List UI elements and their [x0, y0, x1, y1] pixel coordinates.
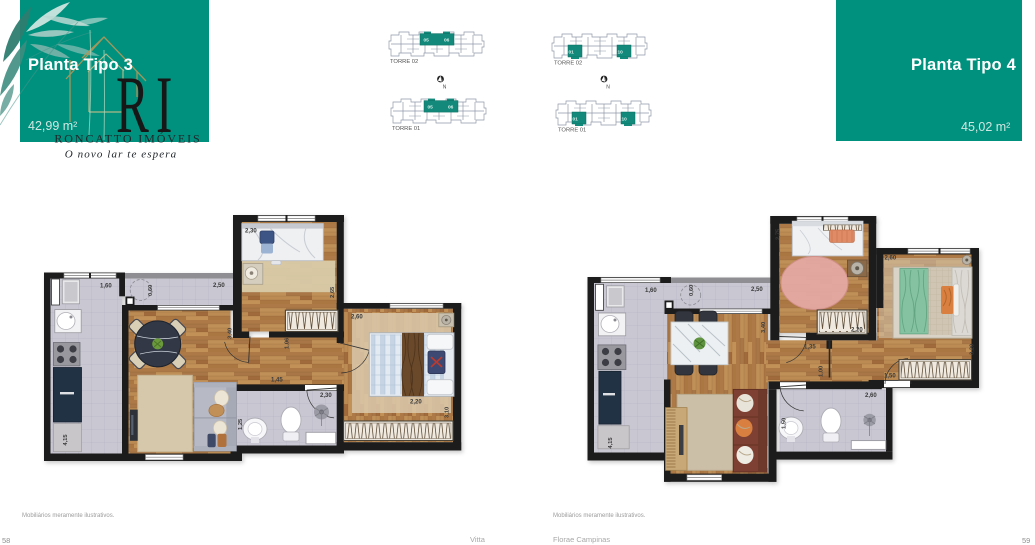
svg-text:2,60: 2,60	[885, 255, 897, 261]
svg-text:3,40: 3,40	[228, 328, 234, 339]
svg-text:RONCATTO IMÓVEIS: RONCATTO IMÓVEIS	[54, 132, 201, 146]
svg-text:TORRE 01: TORRE 01	[558, 128, 586, 134]
svg-text:10: 10	[618, 50, 624, 56]
svg-text:N: N	[443, 85, 447, 91]
svg-text:O novo lar te espera: O novo lar te espera	[65, 149, 177, 161]
svg-text:1,06: 1,06	[285, 337, 291, 349]
svg-text:1,60: 1,60	[100, 284, 112, 290]
svg-text:2,65: 2,65	[330, 286, 336, 298]
svg-text:0,60: 0,60	[148, 285, 154, 296]
svg-text:2,50: 2,50	[751, 287, 763, 293]
svg-text:1,45: 1,45	[271, 378, 283, 384]
svg-text:01: 01	[569, 50, 575, 56]
svg-text:2,60: 2,60	[865, 393, 877, 399]
svg-text:1,50: 1,50	[782, 418, 788, 429]
svg-text:1,60: 1,60	[645, 288, 657, 294]
svg-text:2,20: 2,20	[410, 400, 422, 406]
svg-text:1,50: 1,50	[884, 374, 896, 380]
svg-text:3,40: 3,40	[761, 322, 767, 333]
svg-text:2,30: 2,30	[245, 229, 257, 235]
svg-text:05: 05	[428, 105, 434, 111]
svg-text:1,35: 1,35	[804, 345, 816, 351]
svg-text:2,60: 2,60	[351, 315, 363, 321]
svg-text:06: 06	[448, 105, 454, 111]
svg-text:2,20: 2,20	[851, 328, 863, 334]
svg-text:2,30: 2,30	[320, 393, 332, 399]
svg-text:1,00: 1,00	[819, 366, 825, 377]
svg-text:TORRE 02: TORRE 02	[390, 59, 418, 65]
svg-text:TORRE 01: TORRE 01	[392, 126, 420, 132]
svg-text:3,10: 3,10	[445, 407, 451, 418]
svg-text:N: N	[606, 85, 610, 91]
svg-text:4,15: 4,15	[63, 434, 69, 446]
svg-text:2,75: 2,75	[776, 228, 782, 240]
svg-text:06: 06	[444, 38, 450, 44]
svg-text:10: 10	[622, 117, 628, 123]
svg-text:TORRE 02: TORRE 02	[554, 61, 582, 67]
svg-text:2,50: 2,50	[213, 283, 225, 289]
svg-text:4,15: 4,15	[608, 437, 614, 449]
svg-text:05: 05	[424, 38, 430, 44]
svg-text:01: 01	[573, 117, 579, 123]
svg-text:1,25: 1,25	[238, 418, 244, 430]
svg-text:0,60: 0,60	[689, 285, 695, 296]
svg-text:3,20: 3,20	[970, 344, 976, 355]
